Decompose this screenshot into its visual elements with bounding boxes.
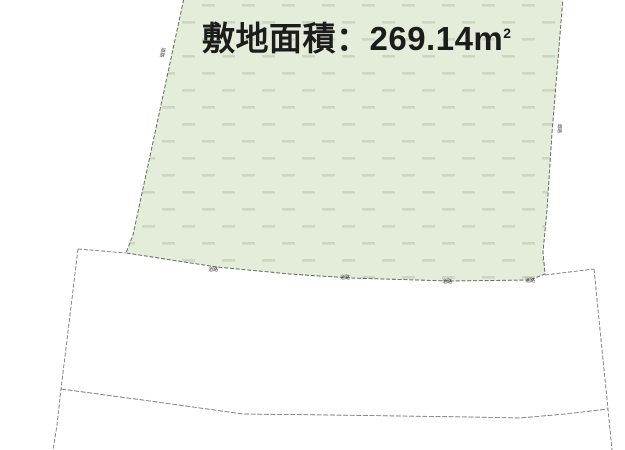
- left-edge-label: 道路: [158, 47, 167, 58]
- site-plan-canvas: 道路 道路 道路 道路 道路 道路: [0, 0, 625, 450]
- road-right-boundary: [594, 269, 612, 450]
- site-area-superscript: 2: [503, 25, 511, 41]
- road-top-right-boundary: [545, 269, 594, 275]
- road-label: 道路: [525, 277, 535, 284]
- road-far-boundary: [61, 389, 608, 418]
- site-area-text: 敷地面積：269.14m: [202, 20, 503, 57]
- road-label: 道路: [340, 274, 350, 281]
- road-left-boundary: [53, 249, 78, 450]
- site-area-title: 敷地面積：269.14m2: [202, 18, 511, 59]
- road-label: 道路: [442, 278, 452, 285]
- road-label: 道路: [208, 266, 218, 273]
- road-top-left-boundary: [78, 249, 126, 253]
- right-edge-label: 道路: [556, 123, 564, 133]
